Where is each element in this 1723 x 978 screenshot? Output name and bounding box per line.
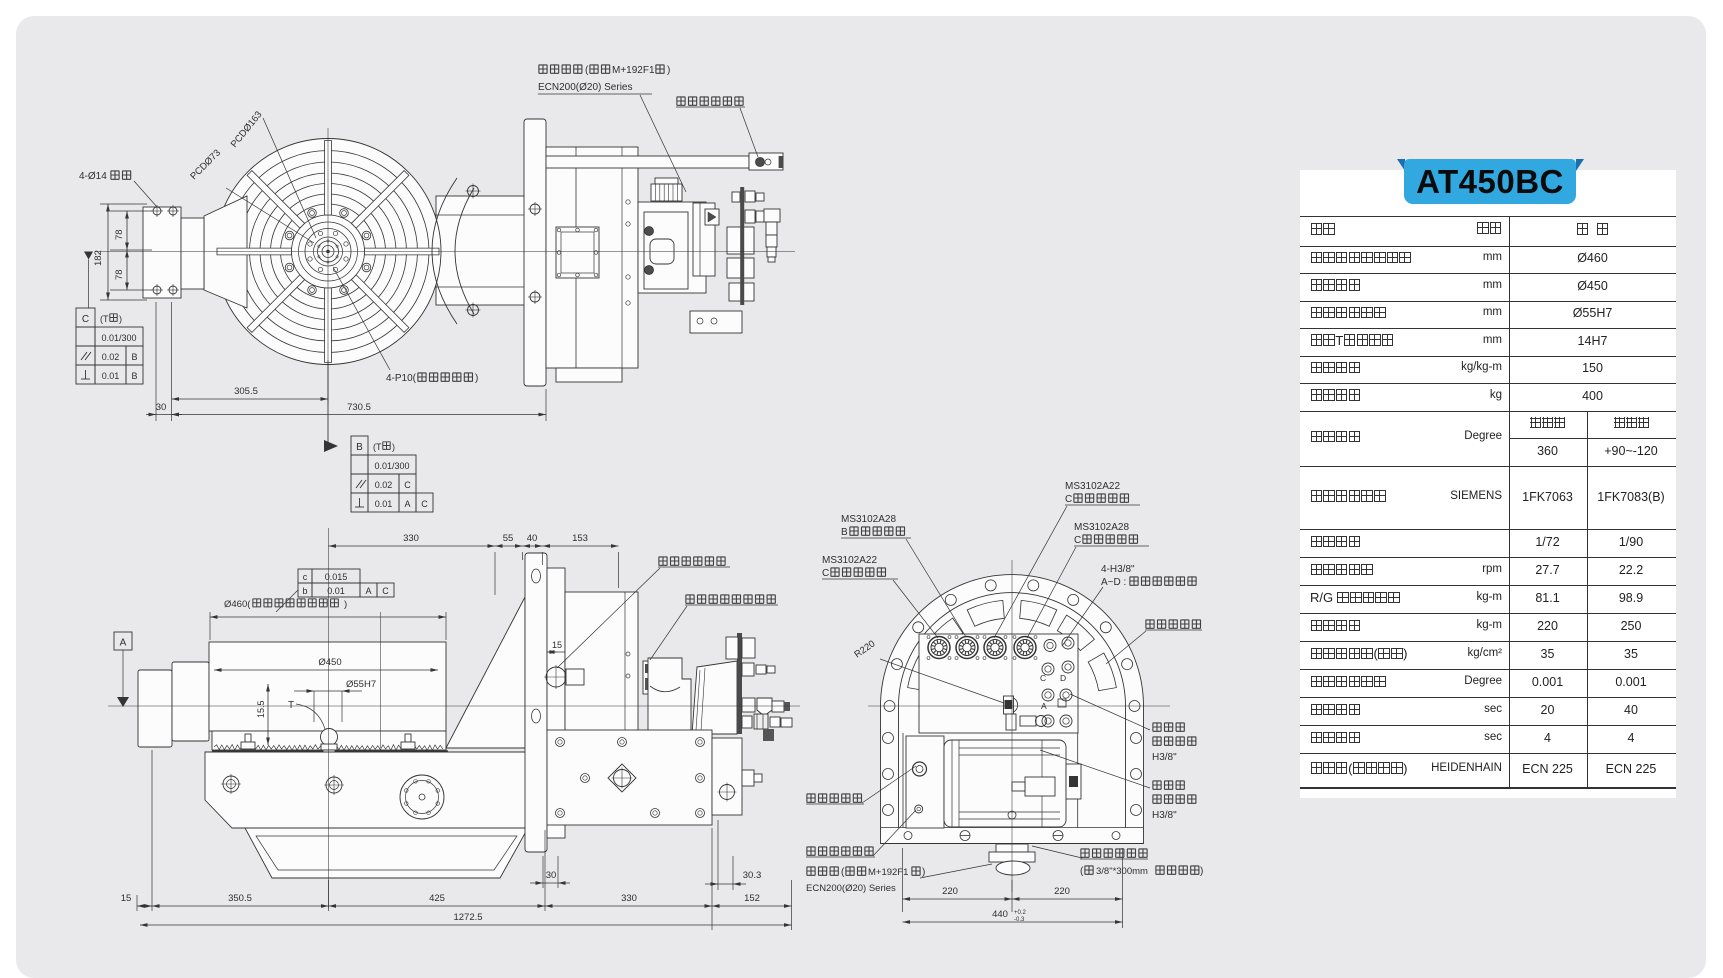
- svg-text:40: 40: [527, 533, 538, 544]
- svg-text:A: A: [404, 499, 410, 509]
- svg-text:425: 425: [429, 893, 445, 904]
- svg-text:4-H3/8": 4-H3/8": [1101, 564, 1135, 575]
- svg-text:): ): [922, 867, 925, 878]
- svg-text:A~D :: A~D :: [1101, 577, 1126, 588]
- svg-text:330: 330: [621, 893, 637, 904]
- svg-text:M+192F1: M+192F1: [612, 65, 655, 76]
- svg-text:): ): [1200, 866, 1203, 877]
- svg-text:15: 15: [552, 640, 562, 650]
- svg-text:0.01/300: 0.01/300: [101, 333, 136, 343]
- svg-text:c: c: [303, 572, 308, 582]
- svg-text:B: B: [131, 352, 137, 362]
- svg-text:220: 220: [1054, 886, 1070, 897]
- svg-text:C: C: [404, 480, 411, 490]
- svg-text:A: A: [365, 586, 371, 596]
- svg-text:PCDØ73: PCDØ73: [188, 147, 223, 182]
- svg-text:350.5: 350.5: [228, 893, 252, 904]
- svg-text:B: B: [356, 442, 363, 453]
- svg-text:15: 15: [121, 893, 132, 904]
- svg-text:78: 78: [114, 269, 125, 280]
- svg-text:0.02: 0.02: [375, 480, 393, 490]
- svg-text:220: 220: [942, 886, 958, 897]
- svg-text:Ø55H7: Ø55H7: [346, 679, 376, 690]
- svg-text:78: 78: [114, 229, 125, 240]
- svg-text:MS3102A28: MS3102A28: [1074, 522, 1129, 533]
- svg-text:C: C: [82, 314, 89, 325]
- svg-text:A: A: [120, 638, 127, 649]
- svg-text:(: (: [841, 867, 845, 878]
- svg-text:30: 30: [546, 870, 557, 881]
- svg-text:0.01: 0.01: [375, 499, 393, 509]
- svg-text:+0.2: +0.2: [1014, 910, 1027, 916]
- svg-text:0.01: 0.01: [327, 586, 345, 596]
- svg-text:Ø450: Ø450: [318, 657, 341, 668]
- svg-text:R220: R220: [852, 638, 877, 660]
- svg-text:4-P10(: 4-P10(: [386, 373, 417, 384]
- svg-text:0.02: 0.02: [102, 352, 120, 362]
- svg-text:-0.3: -0.3: [1014, 917, 1025, 923]
- svg-text:(T: (T: [373, 442, 382, 452]
- svg-text:C: C: [421, 499, 428, 509]
- svg-text:30: 30: [156, 402, 167, 413]
- svg-text:182: 182: [93, 250, 104, 266]
- svg-text:C: C: [1065, 494, 1072, 505]
- svg-text:0.01: 0.01: [102, 371, 120, 381]
- svg-text:C: C: [1040, 673, 1046, 683]
- svg-text:15.5: 15.5: [256, 700, 266, 718]
- svg-text:Ø460(: Ø460(: [224, 599, 251, 610]
- svg-text:305.5: 305.5: [234, 386, 258, 397]
- svg-text:55: 55: [503, 533, 514, 544]
- svg-text:0.01/300: 0.01/300: [374, 461, 409, 471]
- svg-text:4-Ø14: 4-Ø14: [79, 171, 107, 182]
- svg-text:H3/8": H3/8": [1152, 810, 1177, 821]
- svg-text:(: (: [585, 65, 589, 76]
- svg-text:C: C: [382, 586, 389, 596]
- svg-text:): ): [119, 314, 122, 324]
- svg-text:MS3102A22: MS3102A22: [822, 555, 877, 566]
- svg-text:): ): [344, 599, 347, 610]
- svg-text:30.3: 30.3: [743, 870, 762, 881]
- svg-text:D: D: [1060, 673, 1066, 683]
- svg-text:T: T: [288, 700, 294, 711]
- svg-text:MS3102A22: MS3102A22: [1065, 481, 1120, 492]
- svg-text:): ): [667, 65, 670, 76]
- svg-text:MS3102A28: MS3102A28: [841, 514, 896, 525]
- svg-text:330: 330: [403, 533, 419, 544]
- svg-text:): ): [475, 373, 478, 384]
- svg-text:440: 440: [992, 909, 1008, 920]
- svg-text:C: C: [1074, 535, 1081, 546]
- svg-text:(T: (T: [100, 314, 109, 324]
- svg-text:3/8"*300mm: 3/8"*300mm: [1096, 866, 1148, 877]
- svg-text:730.5: 730.5: [347, 402, 371, 413]
- svg-text:(: (: [1080, 866, 1084, 877]
- svg-text:M+192F1: M+192F1: [868, 867, 908, 878]
- svg-text:0.015: 0.015: [325, 572, 348, 582]
- svg-text:C: C: [822, 568, 829, 579]
- svg-text:B: B: [841, 527, 848, 538]
- svg-text:B: B: [131, 371, 137, 381]
- svg-text:): ): [392, 442, 395, 452]
- svg-text:H3/8": H3/8": [1152, 752, 1177, 763]
- svg-text:ECN200(Ø20) Series: ECN200(Ø20) Series: [806, 883, 896, 894]
- svg-text:1272.5: 1272.5: [453, 912, 482, 923]
- svg-text:ECN200(Ø20) Series: ECN200(Ø20) Series: [538, 82, 632, 93]
- svg-text:153: 153: [572, 533, 588, 544]
- svg-text:PCDØ163: PCDØ163: [229, 109, 265, 150]
- svg-text:152: 152: [744, 893, 760, 904]
- svg-text:b: b: [302, 586, 307, 596]
